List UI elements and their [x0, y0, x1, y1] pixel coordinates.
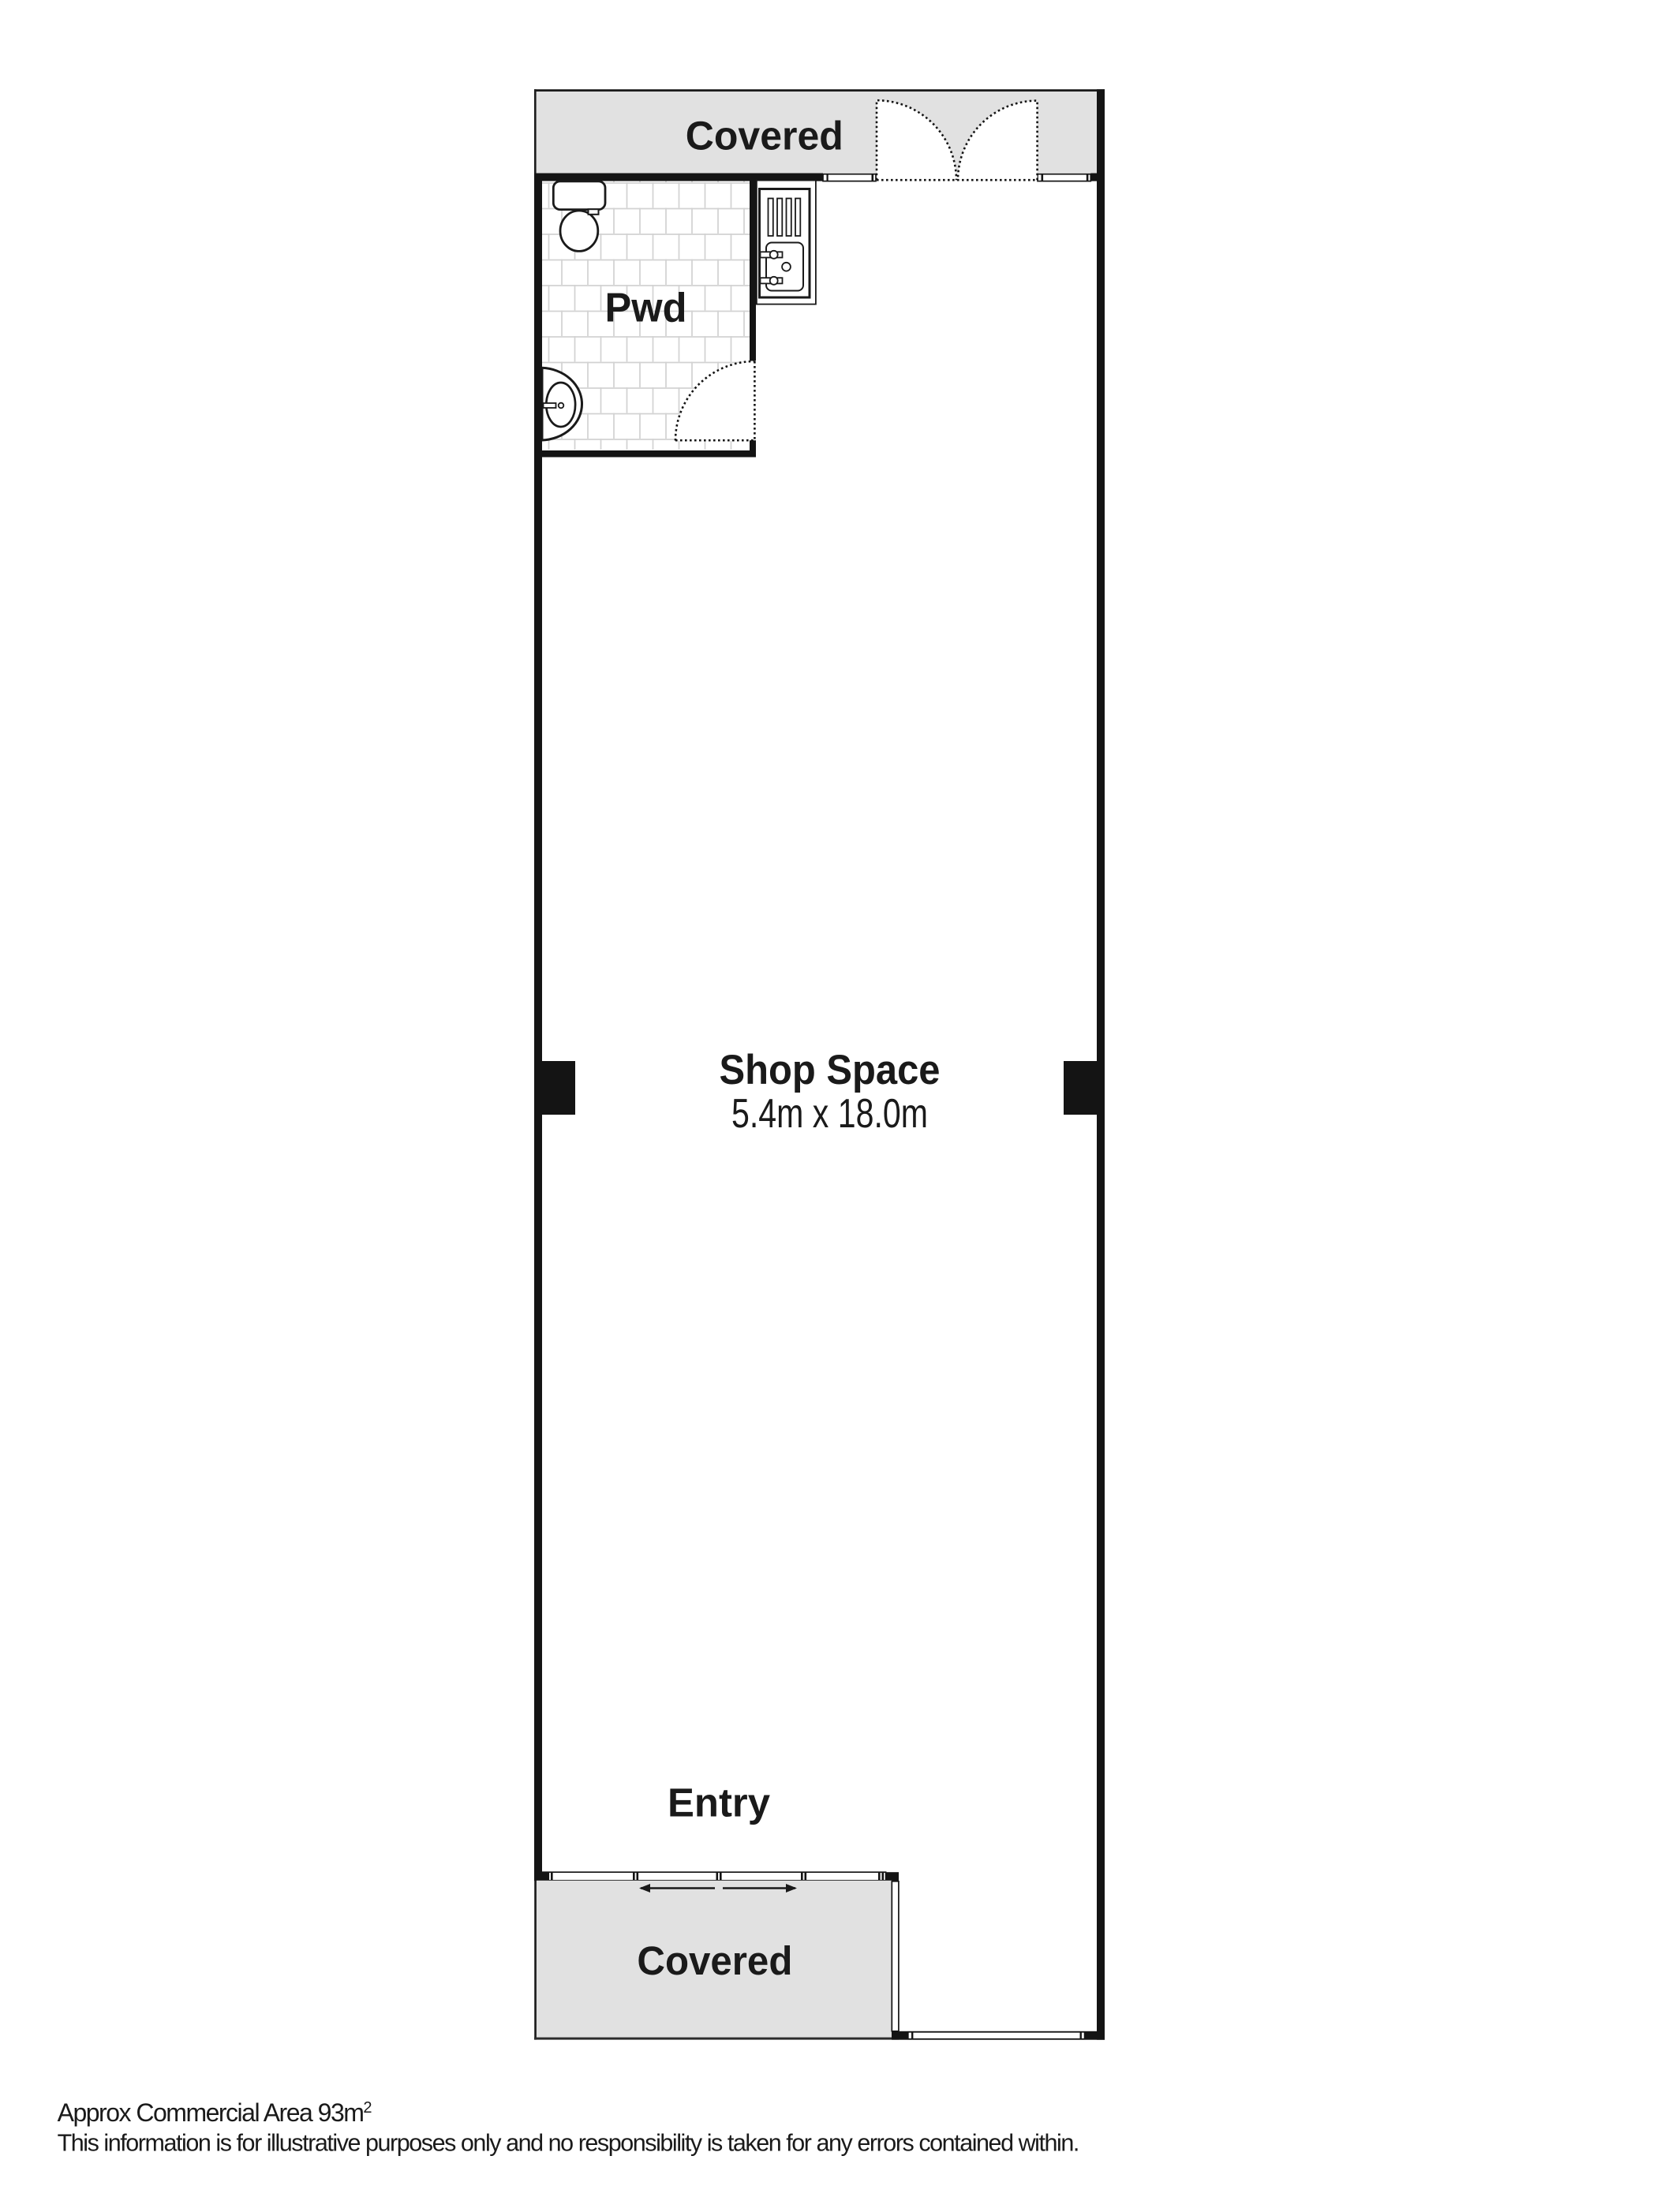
svg-text:Entry: Entry: [668, 1780, 771, 1825]
svg-text:Covered: Covered: [637, 1938, 792, 1983]
svg-text:Covered: Covered: [686, 114, 843, 159]
svg-text:Shop Space: Shop Space: [720, 1047, 941, 1093]
svg-text:Approx Commercial Area 93m2: Approx Commercial Area 93m2: [58, 2098, 372, 2127]
svg-text:This information is for illust: This information is for illustrative pur…: [58, 2130, 1079, 2157]
svg-text:Pwd: Pwd: [605, 286, 687, 331]
svg-text:5.4m x 18.0m: 5.4m x 18.0m: [731, 1090, 928, 1136]
